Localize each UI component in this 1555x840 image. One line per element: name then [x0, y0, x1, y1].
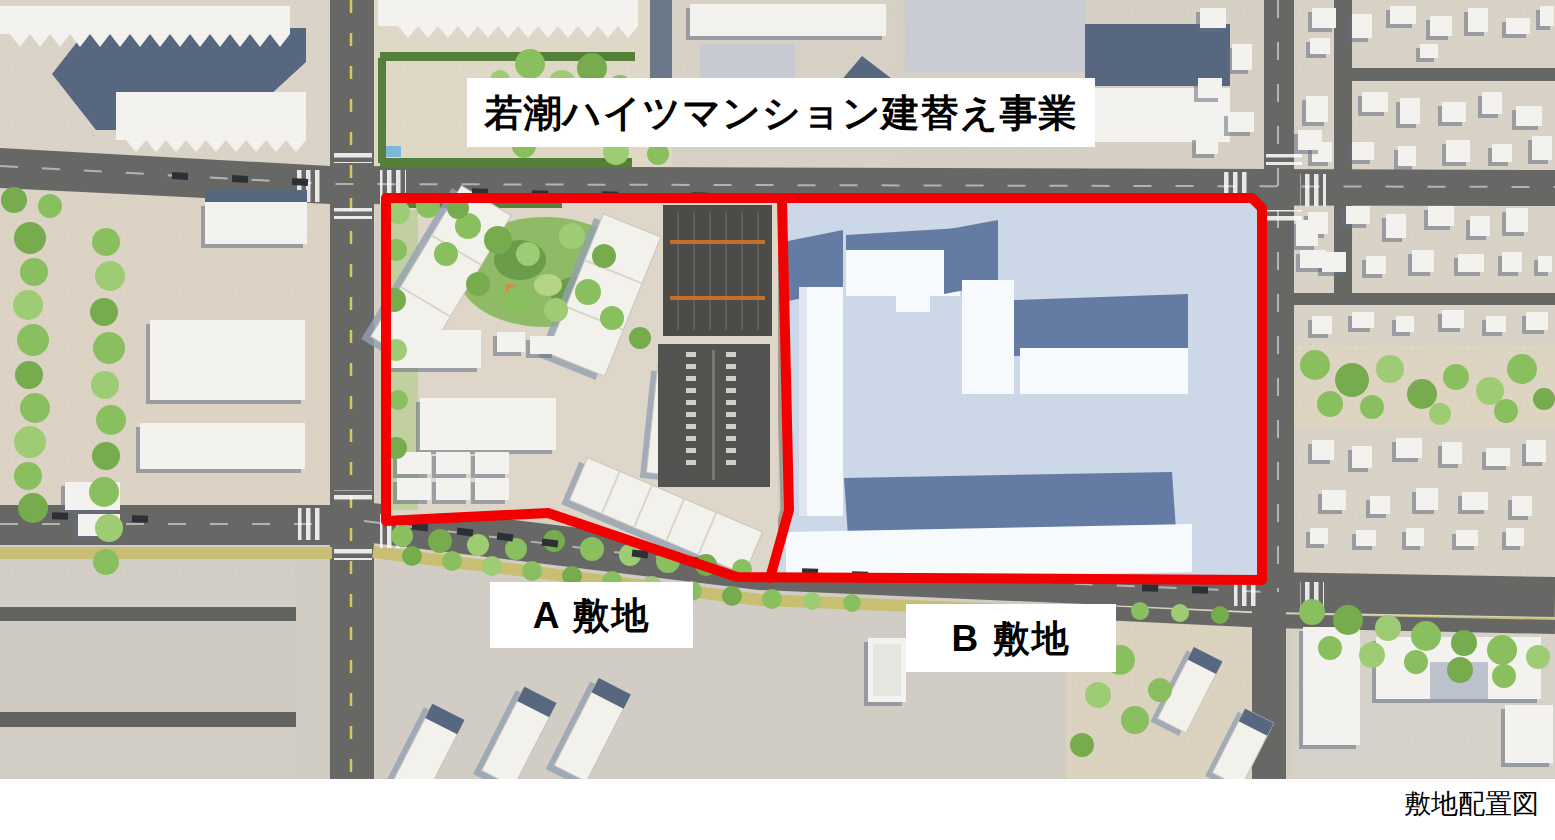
figure-caption: 敷地配置図 [1404, 786, 1539, 822]
site-a-parking-structure [663, 205, 772, 336]
site-b-area [772, 198, 1260, 580]
site-a-parking-lot [658, 344, 770, 487]
project-title-label: 若潮ハイツマンション建替え事業 [467, 78, 1095, 147]
aerial-site-map: 若潮ハイツマンション建替え事業 A 敷地 B 敷地 [0, 0, 1555, 779]
site-b-label: B 敷地 [906, 604, 1116, 672]
site-plan-page: 若潮ハイツマンション建替え事業 A 敷地 B 敷地 敷地配置図 [0, 0, 1555, 840]
site-b-building-east [1014, 294, 1188, 394]
site-a-label: A 敷地 [490, 582, 693, 648]
